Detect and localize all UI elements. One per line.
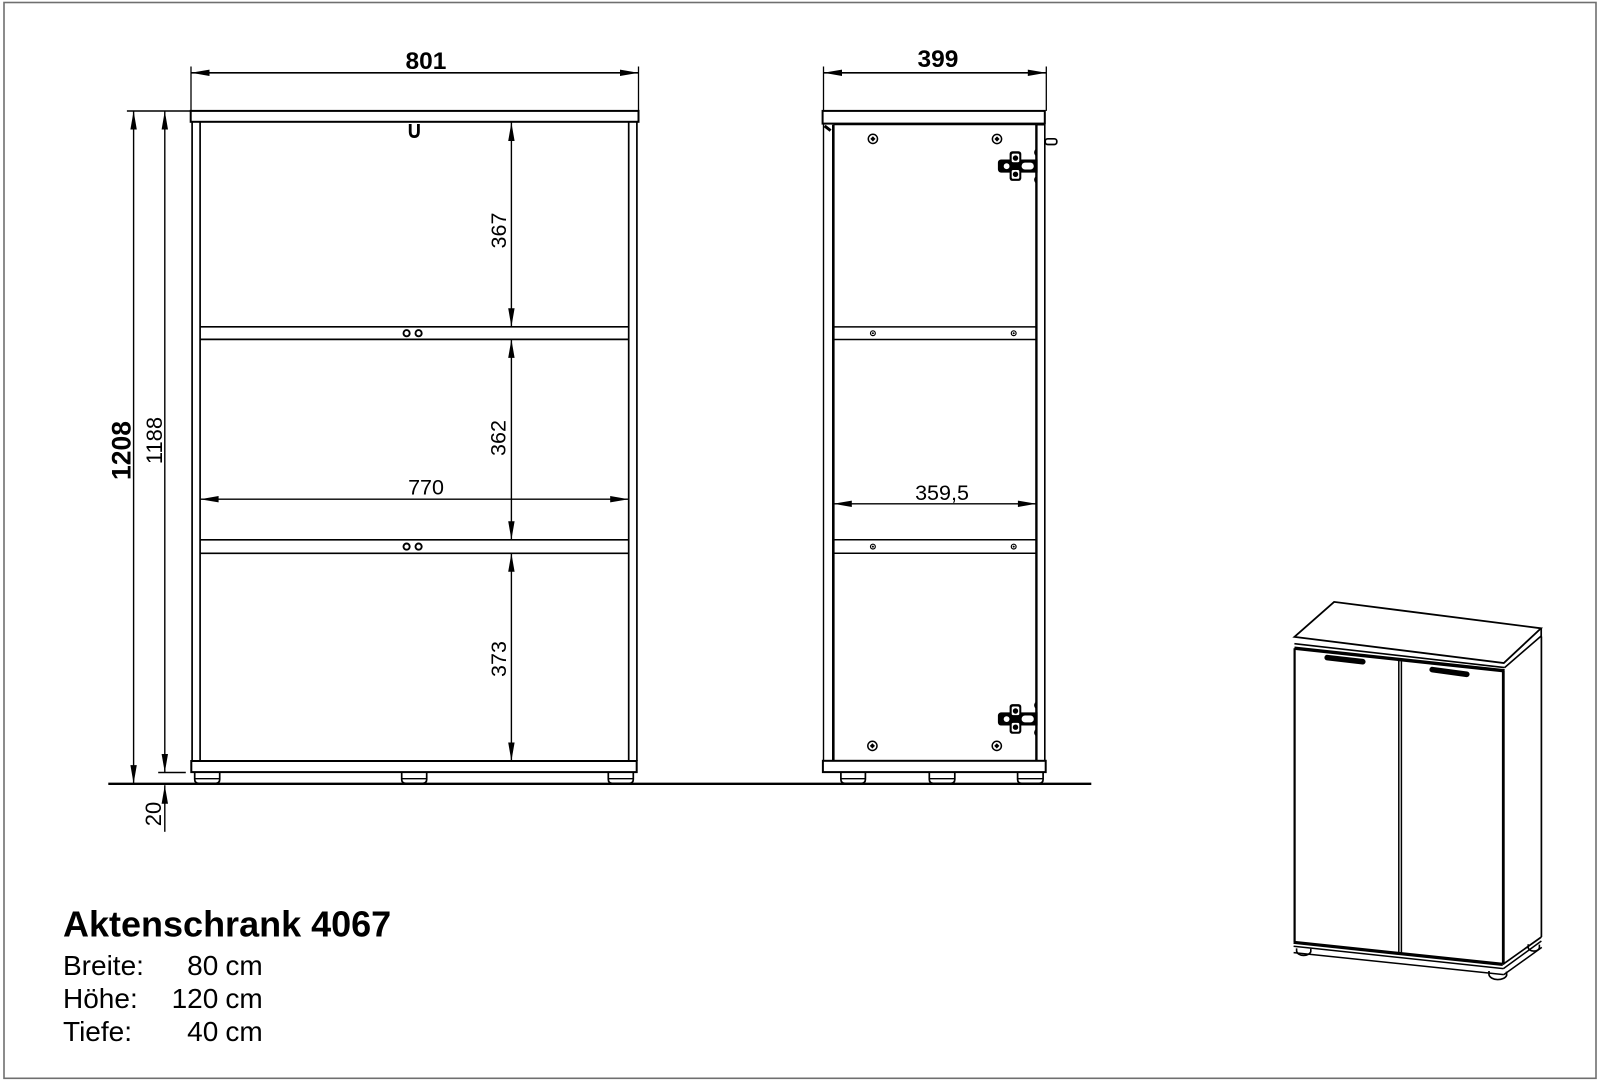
svg-text:1208: 1208: [107, 421, 137, 480]
svg-text:801: 801: [405, 48, 446, 75]
svg-text:cm: cm: [225, 950, 262, 981]
svg-text:367: 367: [487, 213, 511, 249]
svg-text:80: 80: [187, 950, 218, 981]
svg-text:40: 40: [187, 1016, 218, 1047]
svg-text:Tiefe:: Tiefe:: [63, 1016, 132, 1047]
svg-text:1188: 1188: [142, 417, 167, 464]
svg-text:399: 399: [918, 46, 959, 73]
svg-text:362: 362: [486, 420, 510, 456]
svg-text:120: 120: [172, 983, 219, 1014]
svg-text:Höhe:: Höhe:: [63, 983, 138, 1014]
svg-text:359,5: 359,5: [915, 481, 969, 505]
svg-text:Aktenschrank 4067: Aktenschrank 4067: [63, 904, 391, 945]
svg-text:770: 770: [408, 476, 444, 500]
svg-text:Breite:: Breite:: [63, 950, 144, 981]
svg-text:cm: cm: [225, 1016, 262, 1047]
svg-text:20: 20: [141, 802, 166, 826]
svg-text:373: 373: [487, 641, 511, 677]
svg-text:cm: cm: [225, 983, 262, 1014]
